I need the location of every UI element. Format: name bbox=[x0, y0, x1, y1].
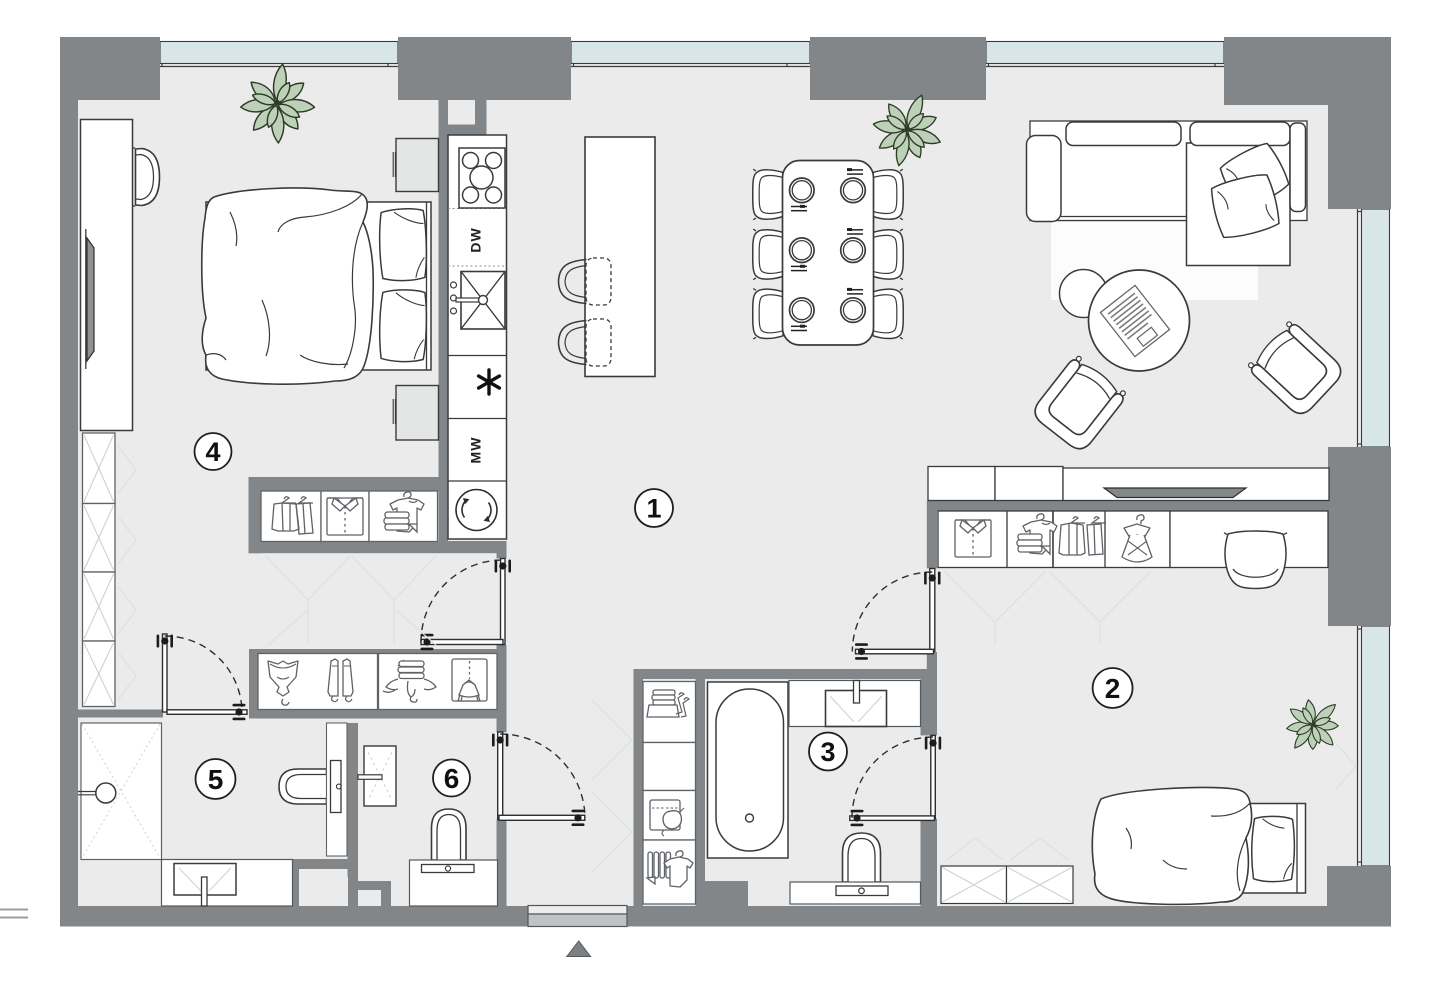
svg-text:MW: MW bbox=[468, 437, 484, 464]
svg-text:6: 6 bbox=[444, 763, 460, 794]
svg-text:2: 2 bbox=[1105, 673, 1121, 704]
svg-text:5: 5 bbox=[208, 764, 224, 795]
svg-text:3: 3 bbox=[820, 737, 835, 767]
svg-text:1: 1 bbox=[646, 494, 661, 524]
svg-text:4: 4 bbox=[205, 437, 220, 467]
svg-text:DW: DW bbox=[468, 227, 484, 252]
